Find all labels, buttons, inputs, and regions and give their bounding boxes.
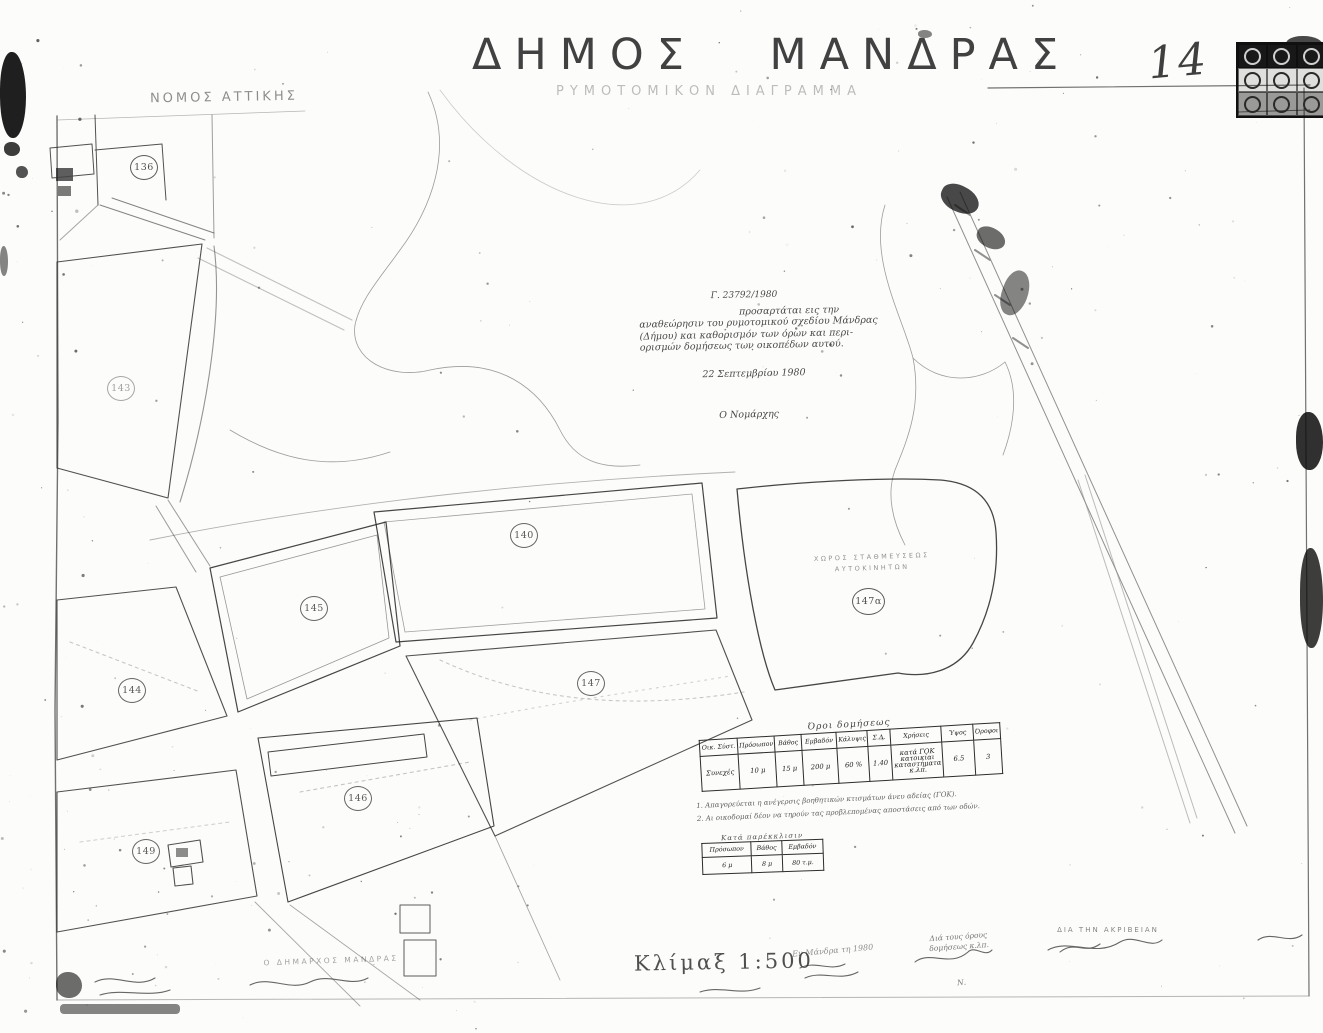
sheet-number: 14 xyxy=(1146,33,1210,89)
scan-blob xyxy=(60,1004,180,1014)
terms-value: 3 xyxy=(974,739,1003,776)
approval-note: Γ. 23792/1980 προσαρτάται εις την αναθεώ… xyxy=(639,287,890,423)
parcel-label-136: 136 xyxy=(130,155,158,180)
parcel-label-143: 143 xyxy=(107,376,135,401)
stamp-circle-icon xyxy=(1267,92,1296,116)
parcel-label-149: 149 xyxy=(132,839,160,864)
scan-blob xyxy=(1300,548,1323,648)
parcel-label-140: 140 xyxy=(510,523,538,548)
scale-label: Κλίμαξ 1:500 xyxy=(634,948,814,975)
stamp-circle-icon xyxy=(1297,92,1323,116)
terms-value: Συνεχές xyxy=(700,754,740,791)
approval-date: 22 Σεπτεμβρίου 1980 xyxy=(702,365,888,380)
terms-value: κατά ΓΟΚ κατοικίαι καταστήματα κ.λπ. xyxy=(891,742,944,780)
terms-header: Ύψος xyxy=(941,724,973,742)
terms-header: Βάθος xyxy=(774,734,801,752)
stamp-circle-icon xyxy=(1238,44,1267,68)
derogation-table: Κατά παρέκκλισιν Πρόσωπον Βάθος Εμβαδόν … xyxy=(701,831,824,875)
parcel-label-147: 147 xyxy=(577,671,605,696)
scanned-map-sheet: ΔΗΜΟΣ ΜΑΝΔΡΑΣ ΡΥΜΟΤΟΜΙΚΟΝ ΔΙΑΓΡΑΜΜΑ ΝΟΜΟ… xyxy=(0,0,1323,1033)
terms-header: Κάλυψις xyxy=(836,730,868,748)
stamp-circle-icon xyxy=(1297,44,1323,68)
parcel-label-145: 145 xyxy=(300,596,328,621)
stamp-circle-icon xyxy=(1267,44,1296,68)
map-title: ΔΗΜΟΣ ΜΑΝΔΡΑΣ xyxy=(472,30,1071,80)
derogation-header: Εμβαδόν xyxy=(782,839,824,854)
terms-value: 10 μ xyxy=(738,752,777,789)
terms-value: 6.5 xyxy=(942,740,976,777)
stamp-grid xyxy=(1236,42,1323,118)
derogation-value: 80 τ.μ. xyxy=(782,853,824,871)
terms-value: 15 μ xyxy=(775,750,804,787)
scan-blob xyxy=(16,166,28,178)
terms-value: 200 μ xyxy=(802,748,839,785)
stamp-circle-icon xyxy=(1267,68,1296,92)
map-subtitle: ΡΥΜΟΤΟΜΙΚΟΝ ΔΙΑΓΡΑΜΜΑ xyxy=(556,84,862,99)
engineer-signature-block: Διά τους όρους δομήσεως κ.λπ. Ν. xyxy=(898,928,1022,992)
stamp-circle-icon xyxy=(1238,68,1267,92)
accuracy-certification: ΔΙΑ ΤΗΝ ΑΚΡΙΒΕΙΑΝ xyxy=(1038,926,1178,934)
parcel-label-146: 146 xyxy=(344,786,372,811)
scan-blob xyxy=(0,52,26,138)
derogation-value: 8 μ xyxy=(752,855,783,873)
scan-blob xyxy=(4,142,20,156)
scan-noise-layer xyxy=(0,0,1323,1033)
terms-value: 1.40 xyxy=(868,745,893,781)
stamp-circle-icon xyxy=(1297,68,1323,92)
approval-ref-number: Γ. 23792/1980 xyxy=(711,287,887,302)
terms-header: Σ.Δ. xyxy=(867,729,891,746)
scan-blob xyxy=(56,972,82,998)
derogation-header: Βάθος xyxy=(751,841,782,856)
scan-blob xyxy=(1296,412,1323,470)
derogation-value: 6 μ xyxy=(702,856,752,875)
parcel-label-147a: 147α xyxy=(852,588,885,615)
stamp-circle-icon xyxy=(1238,92,1267,116)
scan-blob xyxy=(0,246,8,276)
parcel-label-144: 144 xyxy=(118,678,146,703)
terms-value: 60 % xyxy=(837,746,870,783)
region-label: ΝΟΜΟΣ ΑΤΤΙΚΗΣ xyxy=(150,89,298,107)
terms-header: Όροφοι xyxy=(973,723,1001,741)
